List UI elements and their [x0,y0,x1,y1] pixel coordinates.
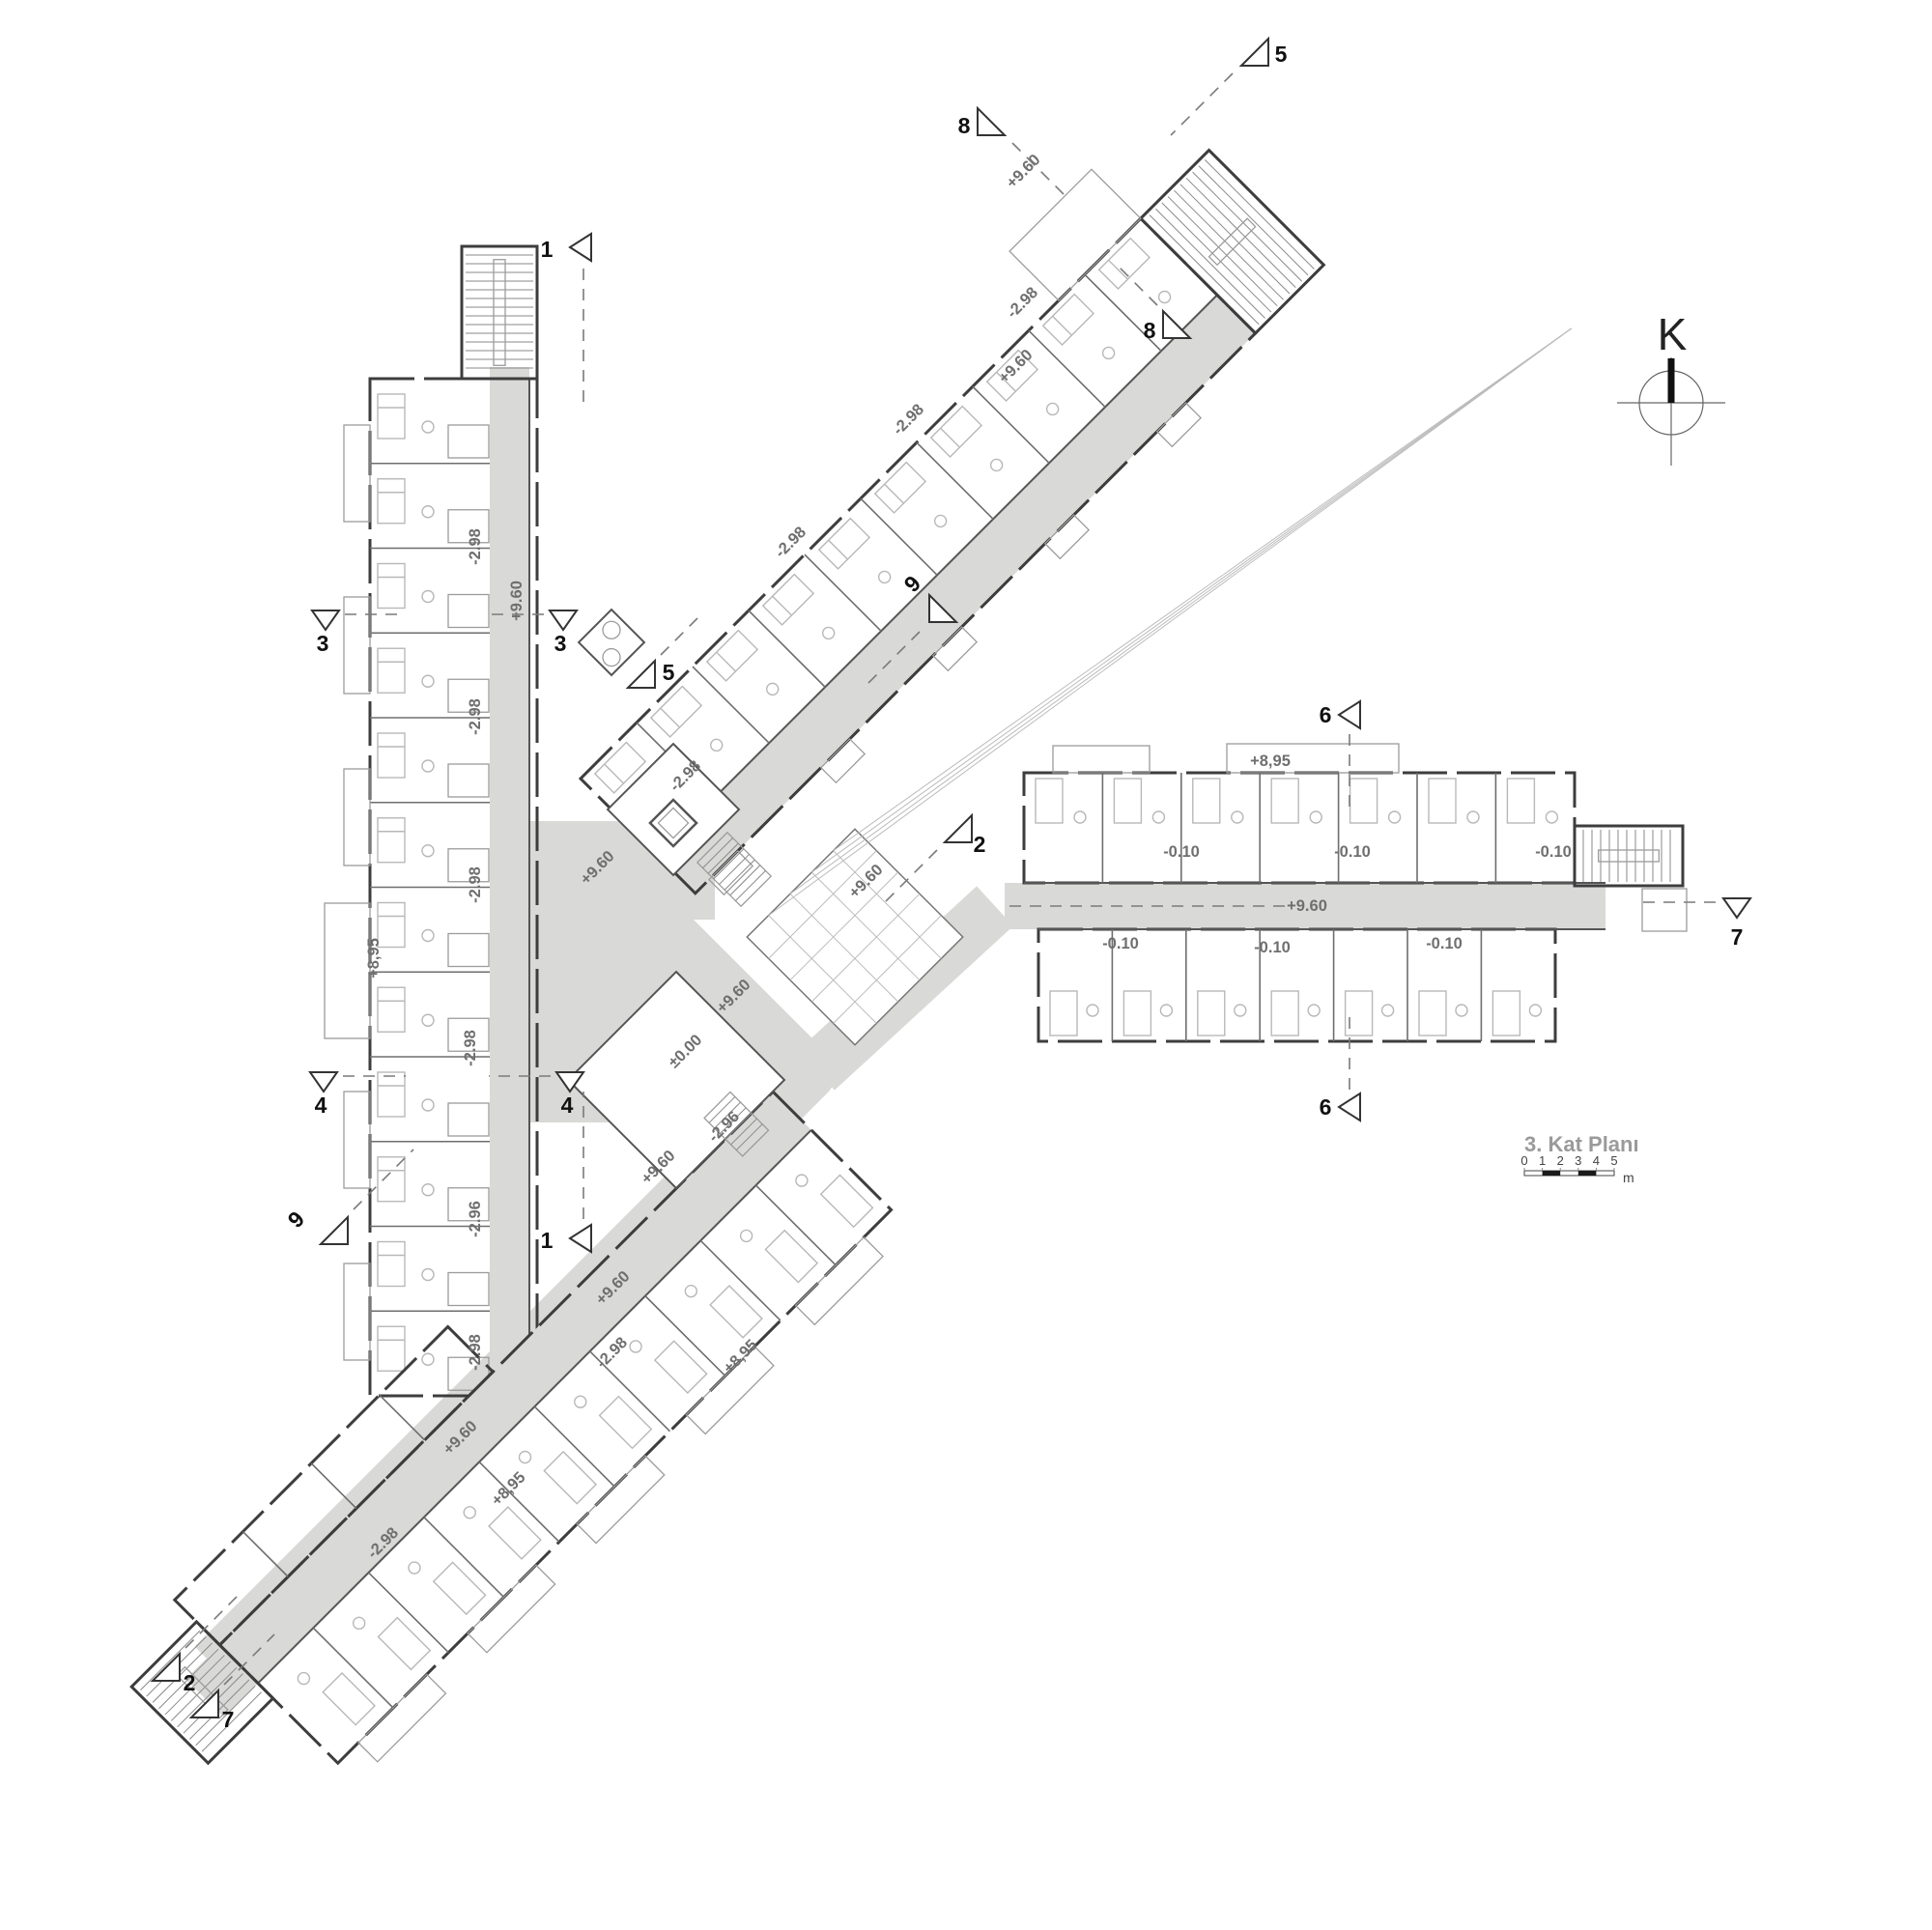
section-marker-triangle [310,1072,337,1092]
section-marker-triangle [1241,39,1268,66]
scale-tick-label: 5 [1610,1153,1617,1168]
level-label: -0.10 [1163,843,1200,861]
section-marker-number: 1 [541,237,554,262]
section-marker-triangle [945,815,972,842]
section-cut-line [1171,73,1233,135]
section-marker-triangle [550,610,577,630]
section-marker-9: 9 [283,1149,413,1244]
section-marker-triangle [570,234,591,261]
title-block: 3. Kat Planı 012345 m [1520,1132,1638,1185]
level-label: -0.10 [1426,935,1463,952]
north-needle [1668,358,1675,403]
section-marker-number: 2 [184,1670,196,1695]
section-marker-triangle [1339,701,1360,728]
section-marker-triangle [312,610,339,630]
scale-tick-label: 4 [1593,1153,1600,1168]
section-marker-5: 5 [1171,39,1288,135]
scale-tick-label: 3 [1575,1153,1581,1168]
section-marker-triangle [1163,311,1190,338]
level-label: -2.98 [772,524,810,561]
section-cut-line [1115,263,1157,305]
section-marker-number: 8 [958,113,971,138]
northeast-wing-stair [1141,150,1324,333]
section-marker-number: 4 [315,1093,327,1118]
section-marker-number: 2 [974,832,986,857]
level-label: +9.60 [1003,151,1043,191]
kitchen-island-symbol [579,610,644,675]
section-cut-line [661,618,697,655]
north-arrow: K [1617,309,1725,466]
east-wing-stair [1575,826,1683,886]
section-marker-number: 7 [222,1707,235,1732]
section-marker-number: 4 [561,1093,574,1118]
section-marker-triangle [321,1217,348,1244]
east-wing [1005,744,1687,1041]
section-marker-number: 3 [317,631,329,656]
section-marker-triangle [628,661,655,688]
section-marker-number: 5 [1275,42,1288,67]
section-marker-7: 7 [1642,898,1750,950]
floor-plan-drawing: -2.98+9.60-2.98-2.98+8,95-2.98-2.96-2.98… [0,0,1932,1930]
scale-tick-label: 2 [1557,1153,1564,1168]
section-marker-number: 9 [283,1206,309,1233]
level-label: -0.10 [1334,843,1371,861]
west-wing-stair [462,246,537,379]
section-marker-8: 8 [1115,263,1190,343]
section-marker-number: 6 [1320,702,1332,727]
level-label: -0.10 [1254,939,1291,956]
level-label: -2.98 [467,528,484,565]
level-label: -2.98 [890,401,927,439]
section-marker-triangle [978,108,1005,135]
scale-tick-label: 1 [1539,1153,1546,1168]
scale-tick-label: 0 [1520,1153,1527,1168]
section-marker-5: 5 [628,618,697,688]
level-label: -2.98 [462,1030,479,1066]
level-label: -2.98 [467,1334,484,1371]
west-wing [325,246,537,1396]
section-marker-number: 3 [554,631,567,656]
level-label: +9.60 [1287,897,1327,915]
level-label: -2.98 [1004,284,1041,322]
section-marker-6: 6 [1320,1016,1360,1121]
level-label: -0.10 [1102,935,1139,952]
scale-bar-segment [1578,1171,1597,1176]
central-hub [568,220,1572,1188]
scale-bar: 012345 [1520,1153,1617,1176]
section-marker-number: 6 [1320,1094,1332,1120]
scale-bar-segment [1543,1171,1561,1176]
section-marker-triangle [1339,1093,1360,1121]
level-label: -2.98 [467,698,484,735]
section-marker-1: 1 [541,234,591,406]
scale-unit: m [1623,1170,1634,1185]
section-marker-number: 8 [1144,318,1156,343]
section-marker-number: 5 [663,660,675,685]
scale-bar-outline [1524,1171,1614,1176]
level-label: -0.10 [1535,843,1572,861]
section-marker-triangle [153,1654,180,1681]
level-label: -2.98 [467,866,484,903]
section-marker-triangle [1723,898,1750,918]
floor-plan-page: -2.98+9.60-2.98-2.98+8,95-2.98-2.96-2.98… [0,0,1932,1930]
section-marker-number: 1 [541,1228,554,1253]
section-marker-4: 4 [310,1072,406,1118]
level-label: +8,95 [488,1468,528,1509]
level-label: +8,95 [1250,752,1291,770]
section-marker-triangle [570,1225,591,1252]
section-marker-number: 7 [1731,924,1744,950]
level-label: +8,95 [720,1336,760,1377]
level-label: +8,95 [365,938,383,979]
north-label: K [1658,309,1688,359]
section-marker-6: 6 [1320,701,1360,809]
level-label: -2.96 [467,1201,484,1237]
